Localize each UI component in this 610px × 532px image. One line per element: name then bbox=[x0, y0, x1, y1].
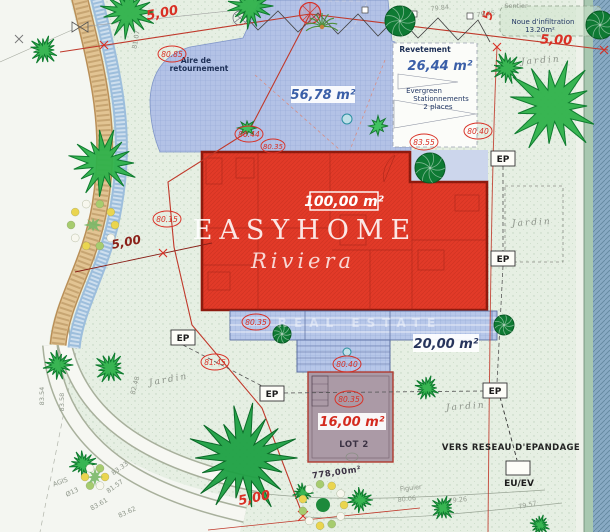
svg-text:56,78 m²: 56,78 m² bbox=[291, 88, 356, 103]
parking-line2: Stationnements bbox=[413, 95, 469, 103]
estate-watermark: REAL ESTATE bbox=[278, 316, 442, 330]
shrub-icon bbox=[586, 11, 610, 39]
parking-line1: Evergreen bbox=[406, 87, 442, 95]
svg-text:80.40: 80.40 bbox=[467, 127, 489, 136]
dim-top-right: 5,00 bbox=[540, 32, 573, 48]
euev-box bbox=[506, 461, 530, 475]
pool-surface-label: 16,00 m² bbox=[318, 413, 386, 430]
svg-text:80.40: 80.40 bbox=[336, 360, 358, 369]
terrace-surface-label: 20,00 m² bbox=[413, 334, 479, 352]
network-label: VERS RESEAU D'EPANDAGE bbox=[442, 443, 580, 453]
sentier-label: Sentier bbox=[504, 2, 528, 10]
svg-text:20,00 m²: 20,00 m² bbox=[414, 337, 479, 352]
parking-line3: 2 places bbox=[423, 103, 453, 111]
svg-text:80.35: 80.35 bbox=[338, 395, 360, 404]
shrub-icon bbox=[415, 153, 445, 183]
svg-text:80.35: 80.35 bbox=[263, 143, 284, 151]
ep-label-5: EP bbox=[489, 387, 502, 397]
house-surface-label: 100,00 m² bbox=[304, 192, 384, 210]
site-plan-drawing: 5,00 5,00 5,00 5,00 5 56,78 m² Aire de r… bbox=[0, 0, 610, 532]
brand-watermark: EASYHOME bbox=[193, 215, 418, 246]
ep-label-4: EP bbox=[497, 255, 510, 265]
ep-label-3: EP bbox=[497, 155, 510, 165]
svg-text:81.45: 81.45 bbox=[204, 358, 226, 367]
svg-text:100,00 m²: 100,00 m² bbox=[304, 194, 384, 210]
east-boundary-band bbox=[576, 0, 610, 532]
svg-text:80.85: 80.85 bbox=[161, 50, 183, 59]
brand-script-watermark: Riviera bbox=[250, 249, 355, 273]
coating-label: Revetement bbox=[399, 45, 451, 54]
svg-text:80.15: 80.15 bbox=[156, 215, 178, 224]
ep-label-1: EP bbox=[177, 334, 190, 344]
shrub-icon bbox=[494, 315, 514, 335]
site-plan: 5,00 5,00 5,00 5,00 5 56,78 m² Aire de r… bbox=[0, 0, 610, 532]
euev-label: EU/EV bbox=[504, 479, 534, 489]
shrub-icon bbox=[385, 6, 415, 36]
svg-text:16,00 m²: 16,00 m² bbox=[320, 415, 385, 430]
lot-label: LOT 2 bbox=[339, 440, 369, 450]
contour-8354: 83.54 bbox=[38, 387, 46, 406]
infiltration-line1: Noue d'infiltration bbox=[512, 18, 575, 26]
turning-area-line2: retournement bbox=[170, 64, 229, 73]
svg-text:80.35: 80.35 bbox=[245, 318, 267, 327]
coating-surface: 26,44 m² bbox=[408, 59, 473, 74]
svg-text:83.55: 83.55 bbox=[413, 138, 435, 147]
svg-text:80.44: 80.44 bbox=[238, 130, 260, 139]
ep-label-2: EP bbox=[266, 390, 279, 400]
infiltration-line2: 13.20m² bbox=[525, 26, 555, 34]
contour-8358: 83.58 bbox=[58, 393, 66, 412]
driveway-surface-label: 56,78 m² bbox=[291, 86, 356, 103]
